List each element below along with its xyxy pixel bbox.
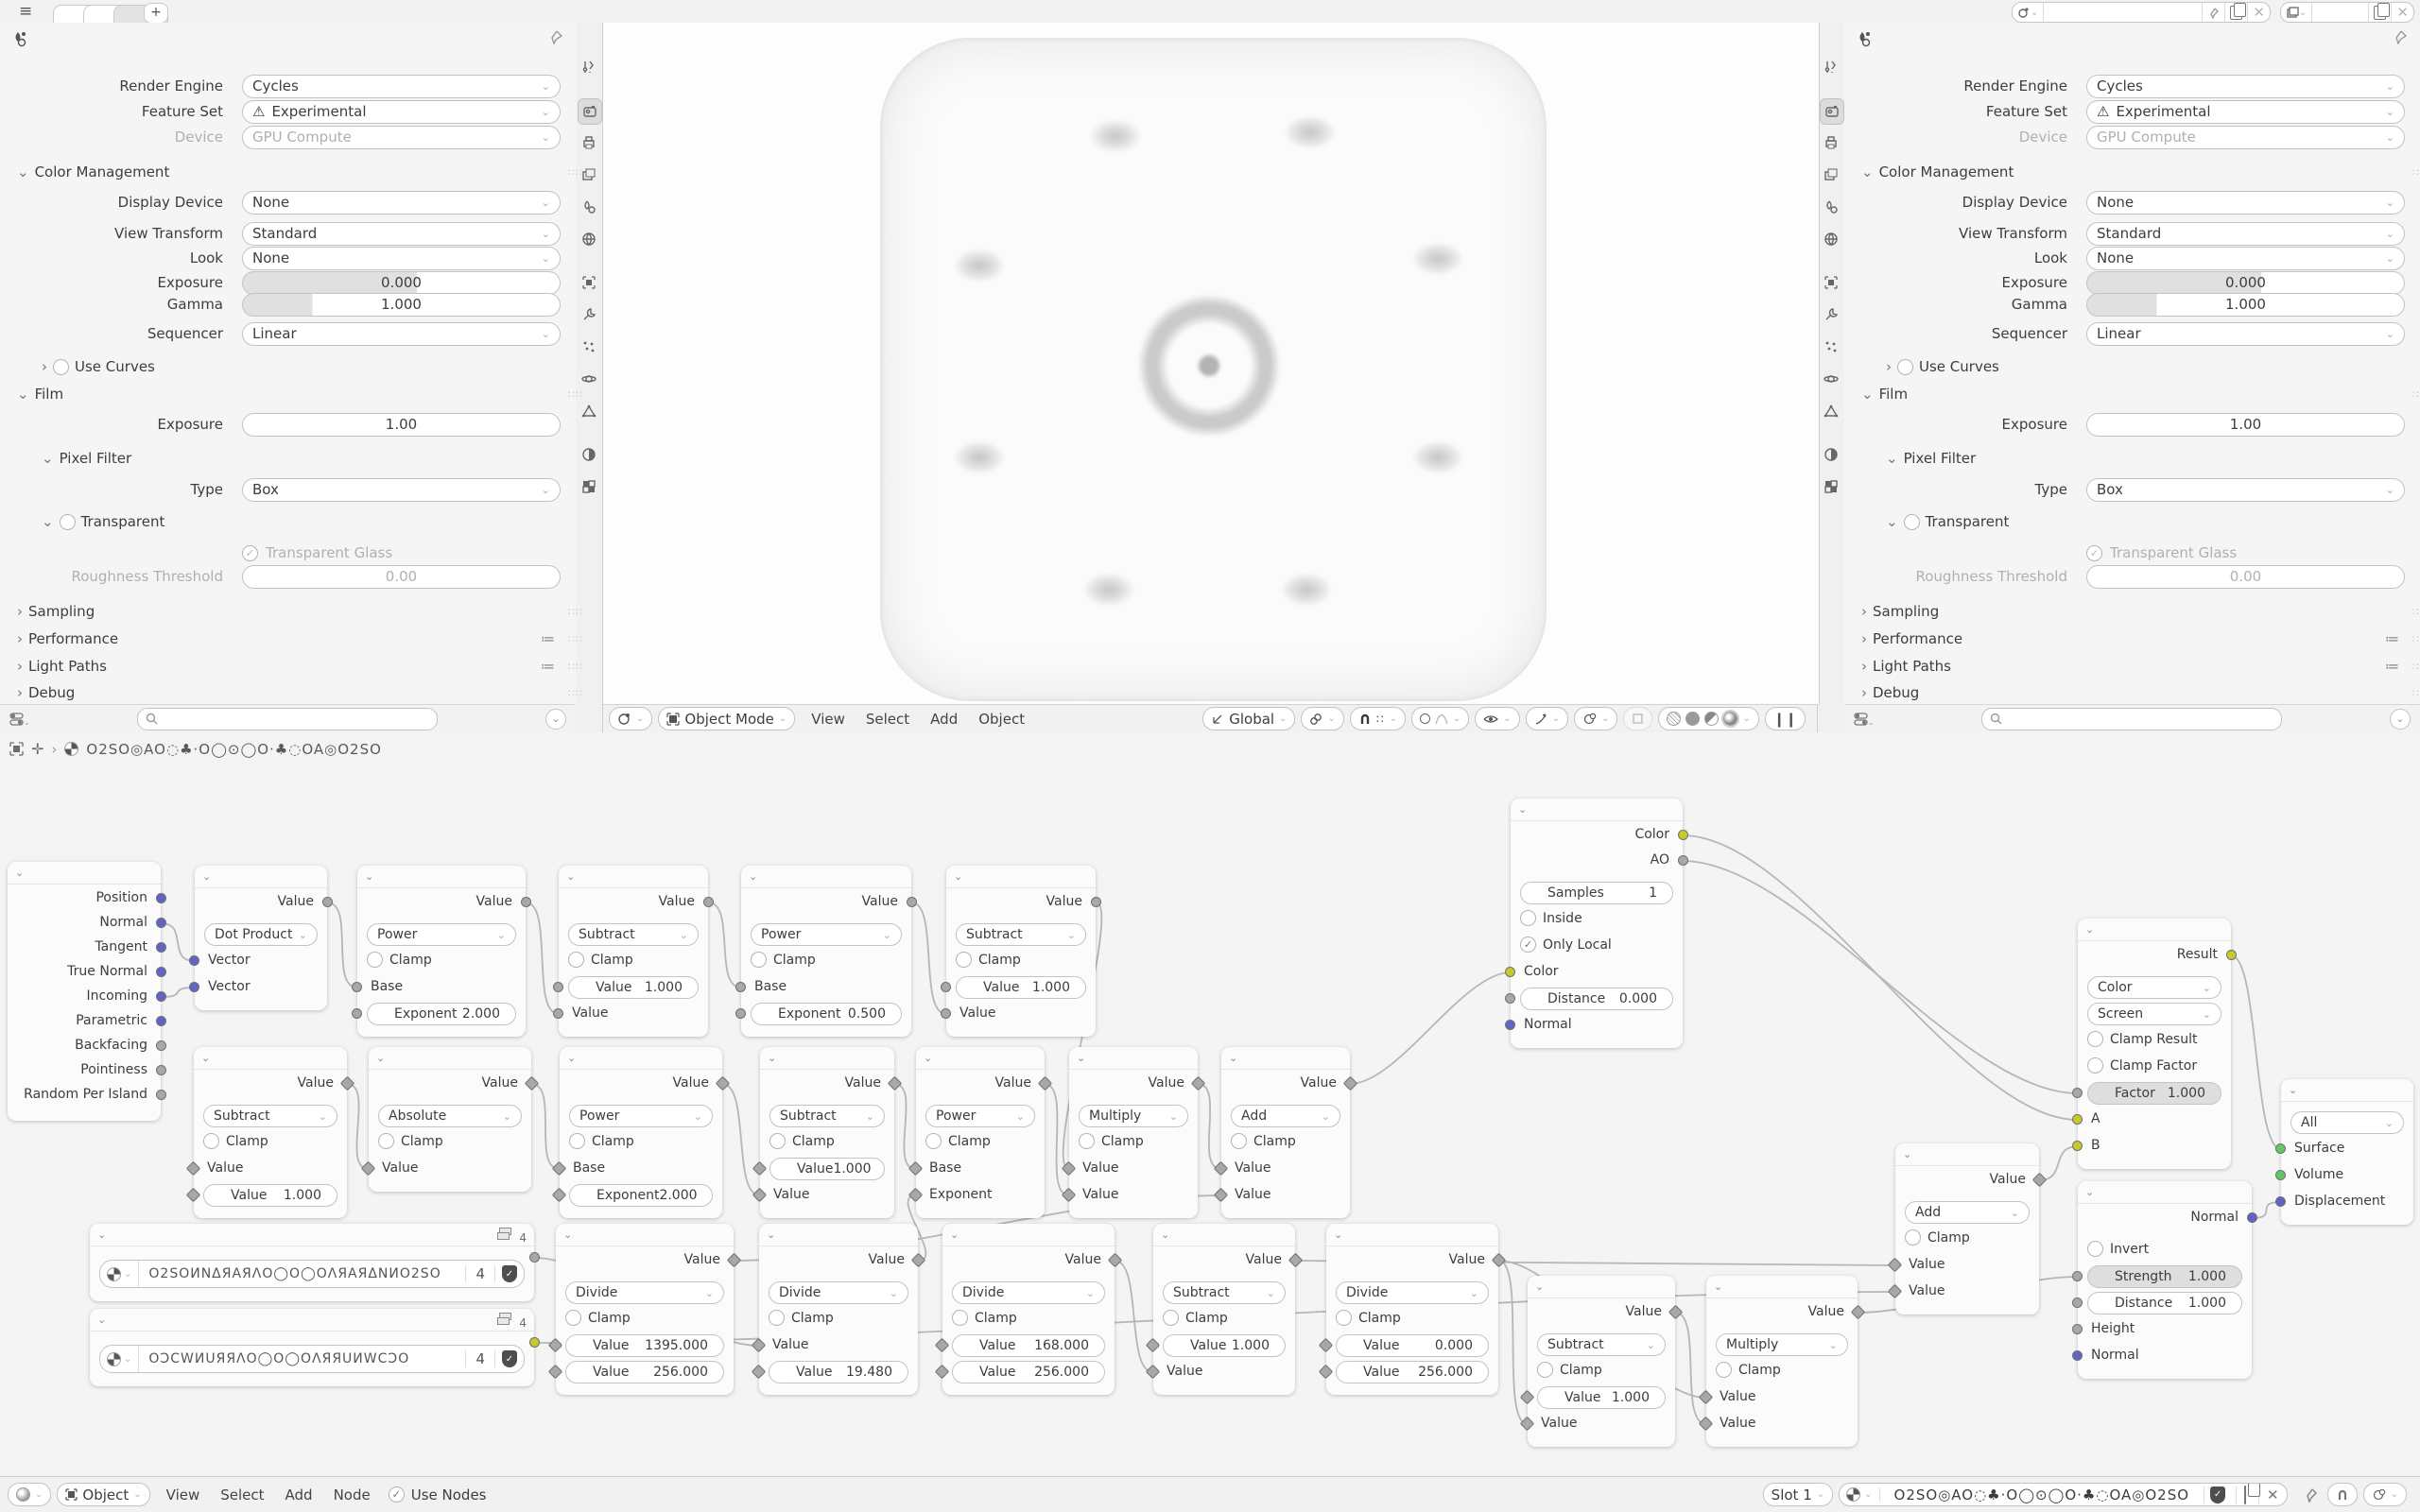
material-datablock[interactable]: ⌄ O2SO◎AO◌♣·O◯⊙◯O·♣◌OA◎O2SO ✓ ✕ [1839, 1483, 2287, 1506]
shading-rendered-icon[interactable] [1723, 712, 1737, 726]
output-socket[interactable] [907, 897, 917, 907]
properties-tab-texture[interactable] [578, 474, 600, 499]
prop-roughness-threshold[interactable]: 0.00 [2086, 565, 2405, 589]
node-mix[interactable]: ⌄ResultColor⌄Screen⌄Clamp ResultClamp Fa… [2078, 919, 2231, 1169]
properties-tab-texture[interactable] [1820, 474, 1842, 499]
filter-options-icon[interactable]: ⌄ [9, 712, 28, 727]
output-socket[interactable] [156, 1065, 166, 1075]
node-check-clamp[interactable]: Clamp [956, 952, 1086, 968]
section-debug[interactable]: ›Debug∷∷ [1844, 680, 2420, 705]
node-value-value[interactable]: Value1.000 [956, 976, 1086, 999]
snap-magnet-toggle[interactable] [2327, 1483, 2358, 1506]
node-operation-select[interactable]: Color⌄ [2087, 976, 2221, 999]
section-light-paths[interactable]: ›Light Paths≔∷∷ [0, 654, 593, 679]
subsection-pixel-filter[interactable]: ⌄Pixel Filter [1844, 446, 2420, 471]
node-value-value[interactable]: Value256.000 [565, 1361, 724, 1383]
node-value-exponent[interactable]: Exponent2.000 [569, 1184, 713, 1207]
node-operation-select[interactable]: Subtract⌄ [769, 1105, 885, 1127]
output-socket[interactable] [2247, 1212, 2257, 1223]
scene-name-field[interactable] [2043, 3, 2202, 22]
node-check-clamp[interactable]: Clamp [1163, 1310, 1286, 1326]
node-collapse-chevron[interactable]: ⌄ [1153, 1224, 1295, 1246]
checkbox[interactable] [60, 514, 76, 530]
input-socket[interactable] [2275, 1170, 2286, 1180]
section-debug[interactable]: ›Debug∷∷ [0, 680, 593, 705]
prop-exposure[interactable]: 1.00 [242, 413, 561, 437]
node-collapse-chevron[interactable]: ⌄ [2281, 1079, 2413, 1102]
node-value-value[interactable]: Value19.480 [769, 1361, 908, 1383]
prop-feature-set[interactable]: ⚠Experimental⌄ [2086, 100, 2405, 124]
output-socket[interactable] [156, 893, 166, 903]
input-socket[interactable] [553, 1008, 563, 1019]
node-m_sub2[interactable]: ⌄ValueSubtract⌄ClampValue1.000Value [946, 866, 1096, 1037]
section-performance[interactable]: ›Performance≔∷∷ [1844, 627, 2420, 651]
list-icon[interactable]: ≔ [2385, 630, 2399, 647]
prop-roughness-threshold[interactable]: 0.00 [242, 565, 561, 589]
material-browse-icon[interactable]: ⌄ [1840, 1487, 1879, 1502]
node-collapse-chevron[interactable]: ⌄ [194, 1047, 347, 1070]
pin-icon[interactable] [548, 30, 562, 44]
prop-exposure[interactable]: 0.000 [242, 271, 561, 295]
shading-mode-group[interactable]: ⌄ [1658, 707, 1758, 730]
output-socket[interactable] [156, 918, 166, 928]
node-tex1[interactable]: ⌄4⌄O2SOͶNΔЯAЯΛO◯O◯OΛЯAЯΔNͶO2SO4✓ [90, 1224, 534, 1301]
node-operation-select[interactable]: Power⌄ [367, 923, 516, 946]
input-socket[interactable] [2072, 1114, 2083, 1125]
node-check-inside[interactable]: Inside [1520, 910, 1673, 926]
input-socket[interactable] [2275, 1196, 2286, 1207]
node-collapse-chevron[interactable]: ⌄ [369, 1047, 531, 1070]
node-collapse-chevron[interactable]: ⌄ [1326, 1224, 1498, 1246]
output-socket[interactable] [521, 897, 531, 907]
node-value-value[interactable]: Value1395.000 [565, 1334, 724, 1357]
node-check-clamp[interactable]: Clamp [1537, 1362, 1666, 1378]
prop-feature-set[interactable]: ⚠Experimental⌄ [242, 100, 561, 124]
input-socket[interactable] [189, 955, 199, 966]
node-operation-select[interactable]: Divide⌄ [1336, 1281, 1489, 1304]
datablock-browse-icon[interactable]: ⌄ [100, 1261, 139, 1287]
node-b_div3[interactable]: ⌄ValueDivide⌄ClampValue168.000Value256.0… [942, 1224, 1115, 1395]
editor-type-dropdown[interactable]: ⌄ [609, 707, 652, 730]
node-check-clamp[interactable]: Clamp [1079, 1133, 1188, 1149]
subsection-pixel-filter[interactable]: ⌄Pixel Filter [0, 446, 617, 471]
scene-selector[interactable]: ⌄ ✕ [2012, 2, 2271, 23]
node-collapse-chevron[interactable]: ⌄ [759, 1224, 918, 1246]
prop-exposure[interactable]: 1.00 [2086, 413, 2405, 437]
output-socket[interactable] [703, 897, 714, 907]
node-check-clamp-result[interactable]: Clamp Result [2087, 1031, 2221, 1047]
node-check-clamp[interactable]: Clamp [203, 1133, 337, 1149]
input-socket[interactable] [941, 1008, 951, 1019]
checkbox[interactable] [1897, 359, 1913, 375]
input-socket[interactable] [1505, 1020, 1515, 1030]
copy-icon[interactable] [2236, 1486, 2254, 1503]
properties-tab-scene[interactable] [578, 195, 600, 219]
properties-tab-scene[interactable] [1820, 195, 1842, 219]
node-value-exponent[interactable]: Exponent2.000 [367, 1003, 516, 1025]
node-value-value[interactable]: Value256.000 [1336, 1361, 1489, 1383]
section-light-paths[interactable]: ›Light Paths≔∷∷ [1844, 654, 2420, 679]
node-value-exponent[interactable]: Exponent0.500 [751, 1003, 902, 1025]
node-collapse-chevron[interactable]: ⌄ [1511, 799, 1683, 821]
node-b_sub2[interactable]: ⌄ValueSubtract⌄ClampValue1.000Value [1528, 1276, 1675, 1447]
node-check-clamp[interactable]: Clamp [769, 1310, 908, 1326]
node-collapse-chevron[interactable]: ⌄ [741, 866, 911, 888]
node-value-value[interactable]: Value0.000 [1336, 1334, 1489, 1357]
node-collapse-chevron[interactable]: ⌄ [559, 866, 708, 888]
node-r1_sub2[interactable]: ⌄ValueSubtract⌄ClampValue1.000Value [760, 1047, 894, 1218]
checkbox[interactable] [53, 359, 69, 375]
scene-icon[interactable]: ⌄ [2013, 3, 2043, 22]
overlays-dropdown[interactable]: ⌄ [1574, 707, 1617, 730]
output-socket[interactable] [156, 942, 166, 953]
node-editor-menu-view[interactable]: View [156, 1486, 211, 1503]
prop-render-engine[interactable]: Cycles⌄ [242, 75, 561, 98]
input-socket[interactable] [735, 982, 746, 992]
node-operation-select[interactable]: Add⌄ [1905, 1201, 2030, 1224]
use-nodes-toggle[interactable]: ✓Use Nodes [389, 1486, 487, 1503]
node-check-clamp[interactable]: Clamp [367, 952, 516, 968]
node-operation-select[interactable]: Power⌄ [569, 1105, 713, 1127]
node-geometry[interactable]: ⌄PositionNormalTangentTrue NormalIncomin… [8, 862, 161, 1121]
node-r1_add[interactable]: ⌄ValueAdd⌄ClampValueValue [1221, 1047, 1350, 1218]
properties-tab-render[interactable] [578, 98, 602, 125]
node-operation-select[interactable]: Power⌄ [751, 923, 902, 946]
node-collapse-chevron[interactable]: ⌄ [1895, 1143, 2039, 1166]
input-socket[interactable] [2072, 1350, 2083, 1361]
node-check-clamp[interactable]: Clamp [1716, 1362, 1848, 1378]
node-editor-menu-node[interactable]: Node [323, 1486, 381, 1503]
node-operation-select[interactable]: All⌄ [2290, 1111, 2404, 1134]
properties-tab-modifiers[interactable] [1820, 302, 1842, 327]
input-socket[interactable] [553, 982, 563, 992]
node-b_mul[interactable]: ⌄ValueMultiply⌄ClampValueValue [1706, 1276, 1858, 1447]
output-socket[interactable] [2226, 950, 2237, 960]
node-value-strength[interactable]: Strength1.000 [2087, 1265, 2242, 1288]
copy-icon[interactable] [2368, 3, 2391, 22]
node-collapse-chevron[interactable]: ⌄ [195, 866, 327, 888]
node-operation-select[interactable]: Screen⌄ [2087, 1003, 2221, 1025]
datablock-name-field[interactable]: O2SOͶNΔЯAЯΛO◯O◯OΛЯAЯΔNͶO2SO [139, 1266, 465, 1281]
prop-gamma[interactable]: 1.000 [2086, 293, 2405, 317]
output-socket[interactable] [156, 1090, 166, 1100]
node-operation-select[interactable]: Subtract⌄ [956, 923, 1086, 946]
list-icon[interactable]: ≔ [541, 630, 555, 647]
prop-render-engine[interactable]: Cycles⌄ [2086, 75, 2405, 98]
output-socket[interactable] [1678, 830, 1688, 840]
viewport-menu-select[interactable]: Select [856, 711, 920, 728]
node-collapse-chevron[interactable]: ⌄ [90, 1224, 534, 1246]
properties-tab-output[interactable] [1820, 130, 1842, 155]
node-value-samples[interactable]: Samples1 [1520, 882, 1673, 904]
input-socket[interactable] [735, 1008, 746, 1019]
node-check-clamp[interactable]: Clamp [1336, 1310, 1489, 1326]
node-operation-select[interactable]: Power⌄ [925, 1105, 1035, 1127]
section-color-management[interactable]: ⌄Color Management∷∷ [0, 160, 593, 184]
node-operation-select[interactable]: Divide⌄ [769, 1281, 908, 1304]
subsection-use-curves[interactable]: ›Use Curves [0, 354, 617, 379]
overlays-dropdown[interactable]: ⌄ [2363, 1483, 2407, 1506]
render-pause-button[interactable]: ❙❙ [1765, 707, 1806, 730]
pin-icon[interactable] [2303, 1487, 2318, 1503]
viewport-menu-view[interactable]: View [801, 711, 856, 728]
output-socket[interactable] [156, 967, 166, 977]
section-performance[interactable]: ›Performance≔∷∷ [0, 627, 593, 651]
output-socket[interactable] [156, 1040, 166, 1051]
hamburger-menu-icon[interactable]: ≡ [19, 2, 32, 21]
node-check-clamp[interactable]: Clamp [569, 1133, 713, 1149]
node-value-distance[interactable]: Distance0.000 [1520, 988, 1673, 1010]
slot-dropdown[interactable]: Slot 1⌄ [1763, 1483, 1833, 1506]
output-socket[interactable] [529, 1337, 540, 1348]
properties-tab-tool[interactable] [578, 55, 600, 79]
panel-options-button[interactable]: ⌄ [2390, 709, 2411, 730]
node-r1_abs[interactable]: ⌄ValueAbsolute⌄ClampValue [369, 1047, 531, 1192]
node-collapse-chevron[interactable]: ⌄ [946, 866, 1096, 888]
section-film[interactable]: ⌄Film∷∷ [0, 382, 593, 406]
prop-view-transform[interactable]: Standard⌄ [2086, 222, 2405, 246]
input-socket[interactable] [941, 982, 951, 992]
gizmo-dropdown[interactable]: ⌄ [1526, 707, 1568, 730]
node-collapse-chevron[interactable]: ⌄ [1221, 1047, 1350, 1070]
input-socket[interactable] [1505, 993, 1515, 1004]
search-input[interactable] [137, 708, 438, 730]
node-check-clamp[interactable]: Clamp [925, 1133, 1035, 1149]
node-check-clamp[interactable]: Clamp [952, 1310, 1105, 1326]
node-collapse-chevron[interactable]: ⌄ [556, 1224, 734, 1246]
node-collapse-chevron[interactable]: ⌄ [760, 1047, 894, 1070]
node-check-invert[interactable]: Invert [2087, 1241, 2242, 1257]
node-value-distance[interactable]: Distance1.000 [2087, 1292, 2242, 1314]
node-collapse-chevron[interactable]: ⌄ [1069, 1047, 1198, 1070]
unlink-icon[interactable]: ✕ [2258, 1486, 2287, 1503]
node-b_div4[interactable]: ⌄ValueDivide⌄ClampValue0.000Value256.000 [1326, 1224, 1498, 1395]
viewport-menu-add[interactable]: Add [920, 711, 968, 728]
node-bump[interactable]: ⌄NormalInvertStrength1.000Distance1.000H… [2078, 1181, 2252, 1379]
fake-user-shield-icon[interactable]: ✓ [494, 1350, 524, 1367]
properties-tab-object[interactable] [1820, 270, 1842, 295]
output-socket[interactable] [1091, 897, 1101, 907]
input-socket[interactable] [189, 982, 199, 992]
node-operation-select[interactable]: Subtract⌄ [1163, 1281, 1286, 1304]
node-check-only-local[interactable]: ✓Only Local [1520, 936, 1673, 953]
prop-type[interactable]: Box⌄ [2086, 478, 2405, 502]
node-check-clamp[interactable]: Clamp [751, 952, 902, 968]
orientation-dropdown[interactable]: Global⌄ [1202, 707, 1295, 730]
fake-user-shield-icon[interactable]: ✓ [2204, 1486, 2231, 1503]
node-value-value[interactable]: Value168.000 [952, 1334, 1105, 1357]
node-m_pow2[interactable]: ⌄ValuePower⌄ClampBaseExponent2.000 [357, 866, 526, 1037]
section-color-management[interactable]: ⌄Color Management∷∷ [1844, 160, 2420, 184]
output-socket[interactable] [322, 897, 333, 907]
prop-exposure[interactable]: 0.000 [2086, 271, 2405, 295]
node-check-clamp[interactable]: Clamp [378, 1133, 522, 1149]
node-collapse-chevron[interactable]: ⌄ [1706, 1276, 1858, 1298]
node-m_pow05[interactable]: ⌄ValuePower⌄ClampBaseExponent0.500 [741, 866, 911, 1037]
node-operation-select[interactable]: Divide⌄ [565, 1281, 724, 1304]
node-check-clamp[interactable]: Clamp [1231, 1133, 1340, 1149]
node-m_dot[interactable]: ⌄ValueDot Product⌄VectorVector [195, 866, 327, 1010]
node-collapse-chevron[interactable]: ⌄ [8, 862, 161, 885]
fake-user-shield-icon[interactable]: ✓ [494, 1265, 524, 1282]
node-value-value[interactable]: Value1.000 [1537, 1386, 1666, 1409]
editor-type-dropdown[interactable]: ⌄ [8, 1483, 51, 1506]
mode-dropdown[interactable]: Object Mode⌄ [658, 707, 795, 730]
node-m_sub1[interactable]: ⌄ValueSubtract⌄ClampValue1.000Value [559, 866, 708, 1037]
node-collapse-chevron[interactable]: ⌄ [357, 866, 526, 888]
node-operation-select[interactable]: Add⌄ [1231, 1105, 1340, 1127]
node-collapse-chevron[interactable]: ⌄ [942, 1224, 1115, 1246]
node-value-value[interactable]: Value1.000 [203, 1184, 337, 1207]
output-socket[interactable] [529, 1252, 540, 1263]
datablock-user-count[interactable]: 4 [465, 1265, 494, 1282]
node-operation-select[interactable]: Multiply⌄ [1716, 1333, 1848, 1356]
node-b_div2[interactable]: ⌄ValueDivide⌄ClampValueValue19.480 [759, 1224, 918, 1395]
node-check-clamp-factor[interactable]: Clamp Factor [2087, 1057, 2221, 1074]
node-operation-select[interactable]: Divide⌄ [952, 1281, 1105, 1304]
snap-magnet-toggle[interactable]: ∷⌄ [1350, 707, 1406, 730]
node-out[interactable]: ⌄All⌄SurfaceVolumeDisplacement [2281, 1079, 2413, 1225]
prop-gamma[interactable]: 1.000 [242, 293, 561, 317]
properties-tab-world[interactable] [1820, 227, 1842, 251]
section-sampling[interactable]: ›Sampling∷∷ [0, 599, 593, 624]
check-transparent-glass[interactable]: ✓Transparent Glass [1844, 541, 2420, 565]
node-operation-select[interactable]: Subtract⌄ [203, 1105, 337, 1127]
input-socket[interactable] [2072, 1088, 2083, 1098]
input-socket[interactable] [2072, 1324, 2083, 1334]
node-collapse-chevron[interactable]: ⌄ [1528, 1276, 1675, 1298]
node-editor-menu-add[interactable]: Add [275, 1486, 323, 1503]
properties-tab-object-data[interactable] [1820, 399, 1842, 423]
node-operation-select[interactable]: Dot Product⌄ [204, 923, 318, 946]
xray-toggle[interactable] [1623, 707, 1652, 730]
prop-display-device[interactable]: None⌄ [242, 191, 561, 215]
node-collapse-chevron[interactable]: ⌄ [2078, 1181, 2252, 1204]
subsection-transparent[interactable]: ⌄Transparent [0, 509, 617, 534]
datablock-user-count[interactable]: 4 [465, 1350, 494, 1367]
prop-device[interactable]: GPU Compute⌄ [2086, 126, 2405, 149]
input-socket[interactable] [1505, 967, 1515, 977]
panel-options-button[interactable]: ⌄ [545, 709, 566, 730]
prop-view-transform[interactable]: Standard⌄ [242, 222, 561, 246]
prop-look[interactable]: None⌄ [2086, 247, 2405, 270]
prop-type[interactable]: Box⌄ [242, 478, 561, 502]
viewlayer-selector[interactable]: ⌄ ✕ [2280, 2, 2414, 23]
section-film[interactable]: ⌄Film∷∷ [1844, 382, 2420, 406]
node-value-factor[interactable]: Factor1.000 [2087, 1082, 2221, 1105]
properties-tab-particles[interactable] [1820, 335, 1842, 359]
node-b_sub[interactable]: ⌄ValueSubtract⌄ClampValue1.000Value [1153, 1224, 1295, 1395]
node-r1_pow[interactable]: ⌄ValuePower⌄ClampBaseExponent2.000 [560, 1047, 722, 1218]
pin-icon[interactable] [2202, 3, 2224, 22]
input-socket[interactable] [2072, 1271, 2083, 1281]
properties-tab-modifiers[interactable] [578, 302, 600, 327]
node-operation-select[interactable]: Subtract⌄ [1537, 1333, 1666, 1356]
node-check-clamp[interactable]: Clamp [568, 952, 699, 968]
node-value-value[interactable]: Value1.000 [1163, 1334, 1286, 1357]
node-collapse-chevron[interactable]: ⌄ [90, 1309, 534, 1332]
material-name-field[interactable]: O2SO◎AO◌♣·O◯⊙◯O·♣◌OA◎O2SO [1885, 1486, 2200, 1503]
output-socket[interactable] [156, 1016, 166, 1026]
shading-solid-icon[interactable] [1685, 712, 1700, 726]
viewport-menu-object[interactable]: Object [968, 711, 1035, 728]
node-add2[interactable]: ⌄ValueAdd⌄ClampValueValue [1895, 1143, 2039, 1314]
node-collapse-chevron[interactable]: ⌄ [916, 1047, 1045, 1070]
node-collapse-chevron[interactable]: ⌄ [560, 1047, 722, 1070]
properties-tab-object[interactable] [578, 270, 600, 295]
search-input[interactable] [1981, 708, 2282, 730]
viewlayer-icon[interactable]: ⌄ [2281, 3, 2311, 22]
datablock-name-field[interactable]: OƆϹWͶUЯЯΛO◯O◯OΛЯЯUͶWϹƆO [139, 1351, 465, 1366]
node-editor-menu-select[interactable]: Select [210, 1486, 274, 1503]
node-r1_sub[interactable]: ⌄ValueSubtract⌄ClampValueValue1.000 [194, 1047, 347, 1218]
section-sampling[interactable]: ›Sampling∷∷ [1844, 599, 2420, 624]
shader-node-editor[interactable]: ✛ › O2SO◎AO◌♣·O◯⊙◯O·♣◌OA◎O2SO ⌄PositionN… [0, 732, 2420, 1476]
node-value-value[interactable]: Value1.000 [769, 1158, 885, 1180]
input-socket[interactable] [352, 1008, 362, 1019]
properties-tab-view-layer[interactable] [1820, 163, 1842, 187]
node-check-clamp[interactable]: Clamp [565, 1310, 724, 1326]
subsection-transparent[interactable]: ⌄Transparent [1844, 509, 2420, 534]
copy-icon[interactable] [2224, 3, 2247, 22]
node-r1_pow2[interactable]: ⌄ValuePower⌄ClampBaseExponent [916, 1047, 1045, 1218]
list-icon[interactable]: ≔ [2385, 658, 2399, 675]
prop-sequencer[interactable]: Linear⌄ [2086, 322, 2405, 346]
node-operation-select[interactable]: Multiply⌄ [1079, 1105, 1188, 1127]
properties-tab-material[interactable] [1820, 442, 1842, 467]
node-check-clamp[interactable]: Clamp [769, 1133, 885, 1149]
snapping-dropdown[interactable]: ⌄ [1301, 707, 1343, 730]
shader-type-dropdown[interactable]: Object⌄ [57, 1483, 149, 1506]
filter-options-icon[interactable]: ⌄ [1854, 712, 1873, 727]
node-operation-select[interactable]: Subtract⌄ [568, 923, 699, 946]
node-ao[interactable]: ⌄ColorAOSamples1Inside✓Only LocalColorDi… [1511, 799, 1683, 1048]
checkbox[interactable] [1904, 514, 1920, 530]
output-socket[interactable] [156, 991, 166, 1002]
prop-sequencer[interactable]: Linear⌄ [242, 322, 561, 346]
node-tex2[interactable]: ⌄4⌄OƆϹWͶUЯЯΛO◯O◯OΛЯЯUͶWϹƆO4✓ [90, 1309, 534, 1386]
properties-tab-physics[interactable] [1820, 367, 1842, 391]
viewlayer-name-field[interactable] [2311, 3, 2368, 22]
node-operation-select[interactable]: Absolute⌄ [378, 1105, 522, 1127]
input-socket[interactable] [352, 982, 362, 992]
prop-look[interactable]: None⌄ [242, 247, 561, 270]
properties-tab-output[interactable] [578, 130, 600, 155]
input-socket[interactable] [2072, 1297, 2083, 1308]
node-value-value[interactable]: Value1.000 [568, 976, 699, 999]
list-icon[interactable]: ≔ [541, 658, 555, 675]
prop-display-device[interactable]: None⌄ [2086, 191, 2405, 215]
node-r1_mul[interactable]: ⌄ValueMultiply⌄ClampValueValue [1069, 1047, 1198, 1218]
viewport-3d[interactable] [602, 23, 1820, 704]
node-check-clamp[interactable]: Clamp [1905, 1229, 2030, 1246]
node-b_div1[interactable]: ⌄ValueDivide⌄ClampValue1395.000Value256.… [556, 1224, 734, 1395]
output-socket[interactable] [1678, 855, 1688, 866]
prop-device[interactable]: GPU Compute⌄ [242, 126, 561, 149]
input-socket[interactable] [2072, 1141, 2083, 1151]
node-collapse-chevron[interactable]: ⌄ [2078, 919, 2231, 941]
proportional-editing-toggle[interactable]: ⌄ [1411, 707, 1469, 730]
input-socket[interactable] [2275, 1143, 2286, 1154]
visibility-dropdown[interactable]: ⌄ [1475, 707, 1519, 730]
subsection-use-curves[interactable]: ›Use Curves [1844, 354, 2420, 379]
new-tab-button[interactable]: + [144, 3, 168, 24]
shading-wireframe-icon[interactable] [1667, 712, 1681, 726]
pin-icon[interactable] [2393, 30, 2407, 44]
properties-tab-tool[interactable] [1820, 55, 1842, 79]
node-value-value[interactable]: Value256.000 [952, 1361, 1105, 1383]
datablock-browse-icon[interactable]: ⌄ [100, 1346, 139, 1372]
